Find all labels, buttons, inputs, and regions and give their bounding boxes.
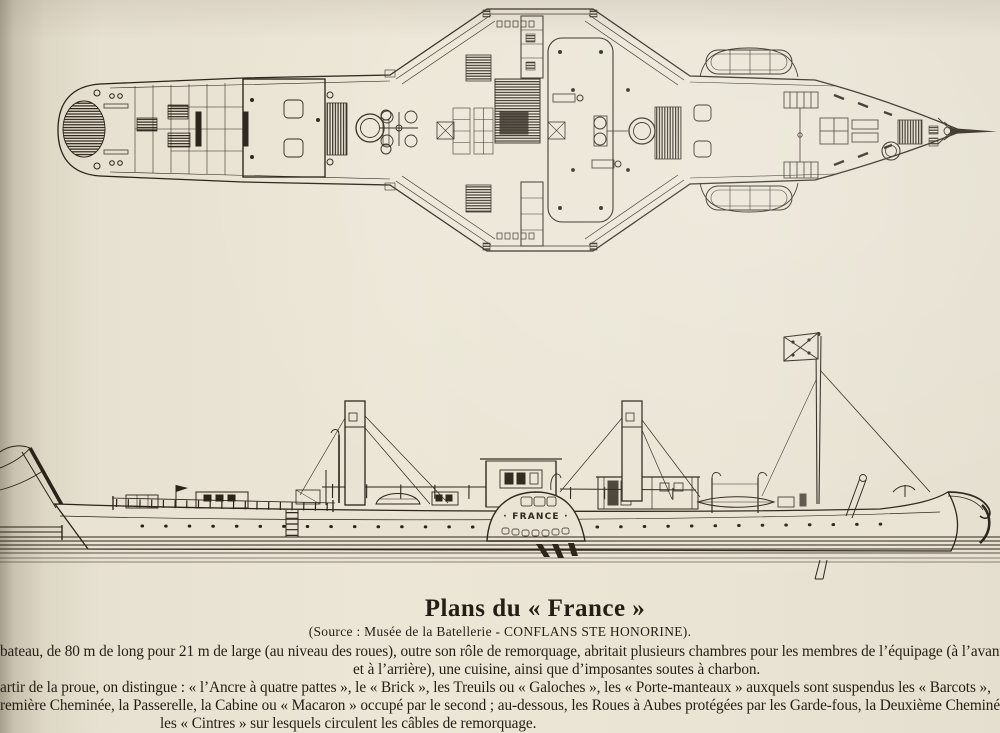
bowsprit <box>950 128 997 134</box>
paddle-blades <box>536 543 578 558</box>
source-line: (Source : Musée de la Batellerie - CONFL… <box>0 624 1000 640</box>
funnel-2-plan <box>629 118 655 144</box>
stern-grating <box>63 101 105 157</box>
skylight-grid <box>453 108 493 154</box>
book-page: { "page": { "paper_color": "#e9e3d3", "i… <box>0 0 1000 732</box>
paddle-box: · FRANCE · <box>487 492 585 541</box>
engine-casing <box>548 38 613 222</box>
funnel-2 <box>622 401 642 501</box>
funnel-1 <box>345 401 365 505</box>
ship-plans-figure: · FRANCE · <box>0 0 1000 593</box>
caption-line-3: artir de la proue, on distingue : « l’An… <box>0 679 991 697</box>
stern-ornament <box>0 446 63 508</box>
ship-name-label: · FRANCE · <box>503 512 568 522</box>
aft-deckhouse <box>243 79 325 177</box>
caption-line-4: remière Cheminée, la Passerelle, la Cabi… <box>0 697 1000 715</box>
deck-plan-view <box>58 9 997 251</box>
caption-line-1: bateau, de 80 m de long pour 21 m de lar… <box>0 643 1000 661</box>
barcot-on-davits <box>698 472 774 513</box>
caption-line-2: et à l’arrière), une cuisine, ainsi que … <box>353 661 760 679</box>
flag <box>784 333 818 361</box>
caption-line-5: les « Cintres » sur lesquels circulent l… <box>160 715 536 733</box>
caption-block: Plans du « France » (Source : Musée de l… <box>0 593 1000 732</box>
page-title: Plans du « France » <box>0 595 1000 623</box>
profile-view: · FRANCE · <box>0 332 1000 579</box>
capstan <box>380 111 418 147</box>
barcot-boats-plan <box>700 48 798 212</box>
